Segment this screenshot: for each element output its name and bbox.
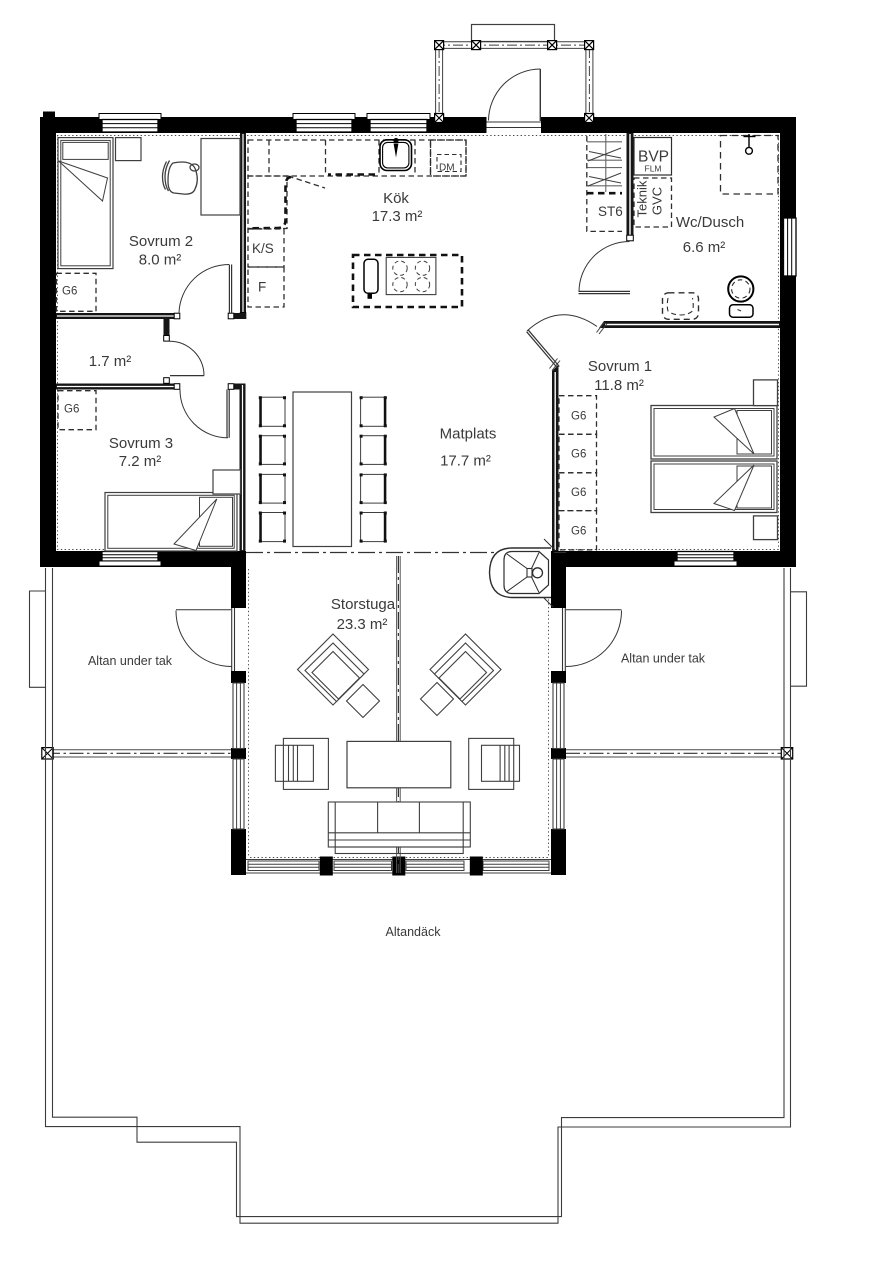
svg-text:K/S: K/S <box>252 241 274 256</box>
svg-text:17.3 m²: 17.3 m² <box>372 208 423 225</box>
svg-text:11.8 m²: 11.8 m² <box>594 377 644 394</box>
svg-text:23.3 m²: 23.3 m² <box>337 616 388 633</box>
svg-text:G6: G6 <box>571 487 586 499</box>
svg-text:Storstuga: Storstuga <box>331 596 396 613</box>
svg-text:GVC: GVC <box>650 187 665 215</box>
svg-text:ST6: ST6 <box>598 204 623 219</box>
svg-text:G6: G6 <box>571 449 586 461</box>
svg-text:Altan under tak: Altan under tak <box>88 654 173 668</box>
svg-text:1.7 m²: 1.7 m² <box>89 353 132 370</box>
svg-text:17.7 m²: 17.7 m² <box>440 453 491 470</box>
svg-text:DM: DM <box>439 163 455 174</box>
svg-text:G6: G6 <box>571 411 586 423</box>
svg-text:Sovrum 1: Sovrum 1 <box>588 358 652 375</box>
svg-text:G6: G6 <box>571 526 586 538</box>
svg-text:6.6 m²: 6.6 m² <box>683 239 726 256</box>
svg-text:F: F <box>258 280 266 295</box>
svg-text:G6: G6 <box>62 286 77 298</box>
svg-text:FLM: FLM <box>645 164 662 174</box>
svg-text:Kök: Kök <box>383 190 409 207</box>
svg-text:Sovrum 2: Sovrum 2 <box>129 233 193 250</box>
svg-text:Matplats: Matplats <box>440 426 497 443</box>
svg-text:Teknik: Teknik <box>635 180 650 217</box>
svg-text:7.2 m²: 7.2 m² <box>119 453 162 470</box>
svg-text:Altandäck: Altandäck <box>386 925 442 939</box>
svg-text:Sovrum 3: Sovrum 3 <box>109 435 173 452</box>
svg-text:8.0 m²: 8.0 m² <box>139 252 182 269</box>
svg-text:G6: G6 <box>64 404 79 416</box>
svg-text:Wc/Dusch: Wc/Dusch <box>676 214 744 231</box>
svg-text:Altan under tak: Altan under tak <box>621 652 706 666</box>
